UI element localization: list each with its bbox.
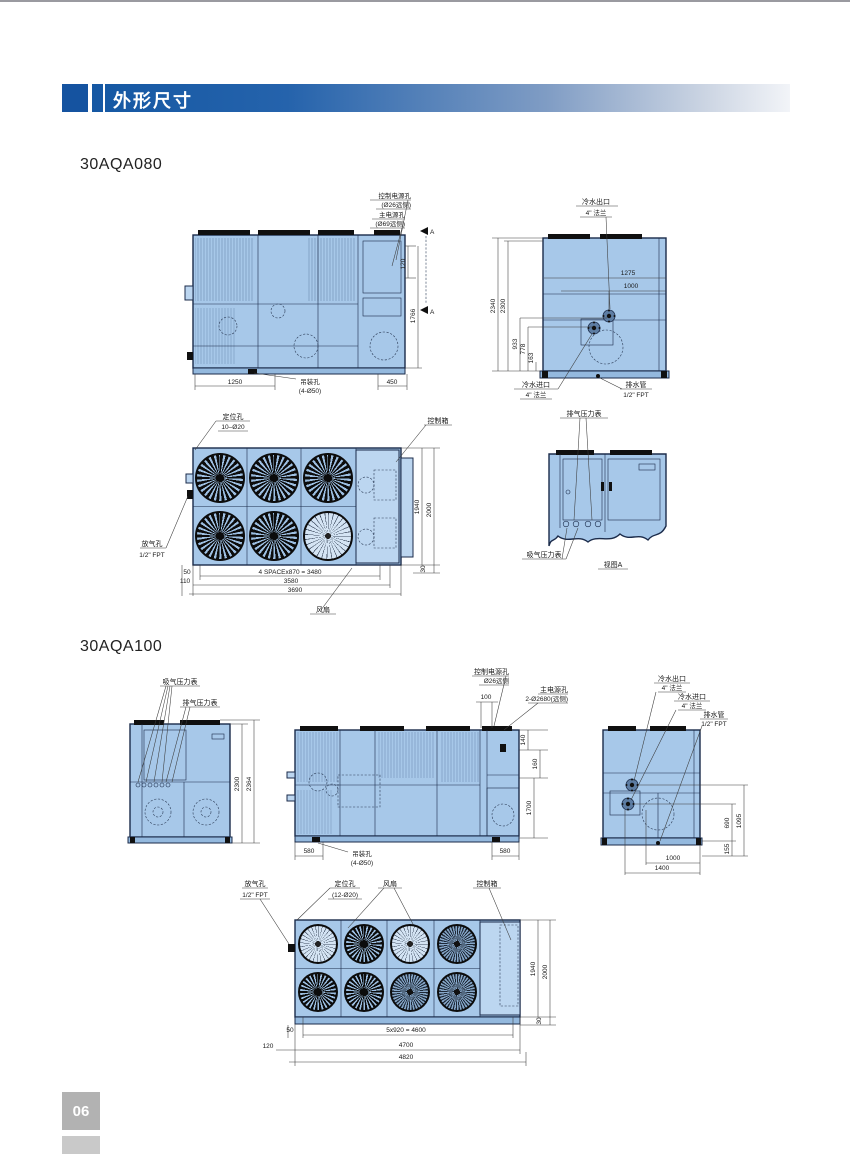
label-vent-hole: 放气孔 xyxy=(142,539,163,548)
drain-point xyxy=(656,841,660,845)
dim-163: 163 xyxy=(528,352,535,363)
aqa080-side-view: 2340 2300 933 778 163 1275 1000 冷水出口 4" … xyxy=(476,194,696,409)
dim-1095: 1095 xyxy=(736,813,743,828)
dim-2300: 2300 xyxy=(234,776,241,791)
section-a-markers: A A xyxy=(420,227,435,316)
aqa080-top-view: 定位孔 10–Ø20 控制箱 放气孔 1/2" FPT 风扇 1940 2000… xyxy=(138,410,473,625)
label-fan: 风扇 xyxy=(383,879,397,888)
label-water-outlet-size: 4" 法兰 xyxy=(586,208,607,217)
label-suction-gauge: 吸气压力表 xyxy=(527,550,562,559)
label-vent-size: 1/2" FPT xyxy=(139,552,164,559)
page-title: 外形尺寸 xyxy=(113,87,193,113)
aqa100-left-view: 吸气压力表 排气压力表 2300 2364 xyxy=(108,672,288,872)
unit-body xyxy=(185,230,405,374)
fan-2 xyxy=(344,924,384,964)
label-main-power-hole: 主电源孔 xyxy=(379,210,406,219)
header-divider xyxy=(103,84,105,112)
label-control-power-size: Ø26远侧 xyxy=(484,676,509,685)
dim-450: 450 xyxy=(387,379,398,386)
label-drain-pipe: 排水管 xyxy=(626,380,647,389)
dim-120: 120 xyxy=(400,258,407,269)
label-drain-size: 1/2" FPT xyxy=(701,721,726,728)
label-vent-hole: 放气孔 xyxy=(245,879,266,888)
dim-50: 50 xyxy=(286,1027,294,1034)
label-water-inlet-size: 4" 法兰 xyxy=(682,701,703,710)
dim-1940: 1940 xyxy=(530,961,537,976)
unit-body xyxy=(601,726,702,845)
dim-3690: 3690 xyxy=(288,587,303,594)
front-labels: 控制电源孔 Ø26远侧 100 主电源孔 2-Ø2680(远侧) xyxy=(472,667,568,730)
dim-2000: 2000 xyxy=(542,964,549,979)
dim-580-right: 580 xyxy=(500,848,511,855)
dim-4700: 4700 xyxy=(399,1042,414,1049)
unit-body xyxy=(540,234,669,378)
fan-3 xyxy=(303,453,353,503)
dim-1250: 1250 xyxy=(228,379,243,386)
dim-1400: 1400 xyxy=(655,865,670,872)
label-control-power-hole: 控制电源孔 xyxy=(379,191,412,200)
label-locating-hole: 定位孔 xyxy=(335,879,356,888)
model-heading-080: 30AQA080 xyxy=(80,156,162,174)
label-control-power-hole: 控制电源孔 xyxy=(474,667,509,676)
fan-8 xyxy=(437,972,477,1012)
fan-4 xyxy=(195,511,245,561)
dim-1000: 1000 xyxy=(624,283,639,290)
drain-point xyxy=(596,374,600,378)
label-suction-gauge: 吸气压力表 xyxy=(163,677,198,686)
dim-2300: 2300 xyxy=(500,298,507,313)
header-accent-square xyxy=(62,84,88,112)
label-locating-size: 10–Ø20 xyxy=(221,424,245,431)
label-discharge-gauge: 排气压力表 xyxy=(183,698,218,707)
label-lifting-size: (4-Ø50) xyxy=(351,860,373,867)
dim-120: 120 xyxy=(263,1043,274,1050)
fan-6 xyxy=(303,511,353,561)
dim-1000: 1000 xyxy=(666,855,681,862)
fan-4 xyxy=(437,924,477,964)
label-water-outlet-size: 4" 法兰 xyxy=(662,683,683,692)
label-view-a: 视图A xyxy=(604,560,623,569)
dim-4820: 4820 xyxy=(399,1054,414,1061)
dim-140: 140 xyxy=(520,734,527,745)
fan-7 xyxy=(390,972,430,1012)
dim-30: 30 xyxy=(536,1017,543,1025)
label-lifting-hole: 吊装孔 xyxy=(352,849,372,858)
dim-155: 155 xyxy=(724,843,731,854)
dim-2340: 2340 xyxy=(490,298,497,313)
label-main-power-size: 2-Ø2680(远侧) xyxy=(525,694,568,703)
section-a-bottom: A xyxy=(430,309,435,316)
header-gradient-bar xyxy=(92,84,790,112)
page-top-border xyxy=(0,0,850,2)
label-water-inlet-size: 4" 法兰 xyxy=(526,390,547,399)
aqa080-front-view: 控制电源孔 (Ø26远侧) 主电源孔 (Ø69远侧) A A 120 1766 … xyxy=(158,186,468,401)
label-main-power-hole: 主电源孔 xyxy=(540,685,568,694)
section-a-top: A xyxy=(430,229,435,236)
dim-933: 933 xyxy=(512,338,519,349)
label-water-inlet: 冷水进口 xyxy=(522,380,550,389)
dim-2364: 2364 xyxy=(246,776,253,791)
fan-3 xyxy=(390,924,430,964)
dim-30: 30 xyxy=(420,565,427,573)
aqa100-front-view: 控制电源孔 Ø26远侧 100 主电源孔 2-Ø2680(远侧) 140 160… xyxy=(276,660,576,880)
dim-2000: 2000 xyxy=(426,502,433,517)
label-discharge-gauge: 排气压力表 xyxy=(567,409,602,418)
label-locating-hole: 定位孔 xyxy=(223,412,244,421)
dim-778: 778 xyxy=(520,343,527,354)
dim-1700: 1700 xyxy=(526,800,533,815)
aqa100-right-view: 冷水出口 4" 法兰 冷水进口 4" 法兰 排水管 1/2" FPT 1095 … xyxy=(586,673,781,888)
label-locating-size: (12-Ø20) xyxy=(332,892,358,899)
dim-1766: 1766 xyxy=(410,308,417,323)
fan-2 xyxy=(249,453,299,503)
page-number-accent xyxy=(62,1136,100,1154)
dim-space-4600: 5x920 = 4600 xyxy=(386,1027,426,1034)
label-fan: 风扇 xyxy=(316,605,330,614)
label-control-box: 控制箱 xyxy=(428,416,449,425)
label-water-outlet: 冷水出口 xyxy=(582,197,610,206)
label-water-inlet: 冷水进口 xyxy=(678,692,706,701)
label-main-power-size: (Ø69远侧) xyxy=(375,219,405,228)
dim-690: 690 xyxy=(724,817,731,828)
aqa100-top-view: 放气孔 1/2" FPT 定位孔 (12-Ø20) 风扇 控制箱 1940 20… xyxy=(216,876,606,1086)
fan-5 xyxy=(298,972,338,1012)
fan-5 xyxy=(249,511,299,561)
aqa080-control-box-detail: 排气压力表 吸气压力表 视图A xyxy=(518,406,693,581)
label-lifting-hole: 吊装孔 xyxy=(300,377,320,386)
dim-space-3480: 4 SPACEx870 = 3480 xyxy=(259,569,322,576)
label-vent-size: 1/2" FPT xyxy=(242,892,267,899)
label-control-box: 控制箱 xyxy=(477,879,498,888)
label-lifting-size: (4-Ø50) xyxy=(299,388,321,395)
label-drain-size: 1/2" FPT xyxy=(623,392,648,399)
dim-580-left: 580 xyxy=(304,848,315,855)
dim-160: 160 xyxy=(532,758,539,769)
page-number-badge: 06 xyxy=(62,1092,100,1130)
label-water-outlet: 冷水出口 xyxy=(658,674,686,683)
dim-3580: 3580 xyxy=(284,578,299,585)
unit-body xyxy=(287,726,519,842)
dim-100: 100 xyxy=(481,694,492,701)
model-heading-100: 30AQA100 xyxy=(80,638,162,656)
fan-6 xyxy=(344,972,384,1012)
dim-110: 110 xyxy=(180,578,191,585)
dim-50: 50 xyxy=(183,569,191,576)
unit-body xyxy=(128,720,232,843)
fan-1 xyxy=(298,924,338,964)
dim-1275: 1275 xyxy=(621,270,636,277)
fan-1 xyxy=(195,453,245,503)
label-drain-pipe: 排水管 xyxy=(704,710,725,719)
dim-1940: 1940 xyxy=(414,499,421,514)
